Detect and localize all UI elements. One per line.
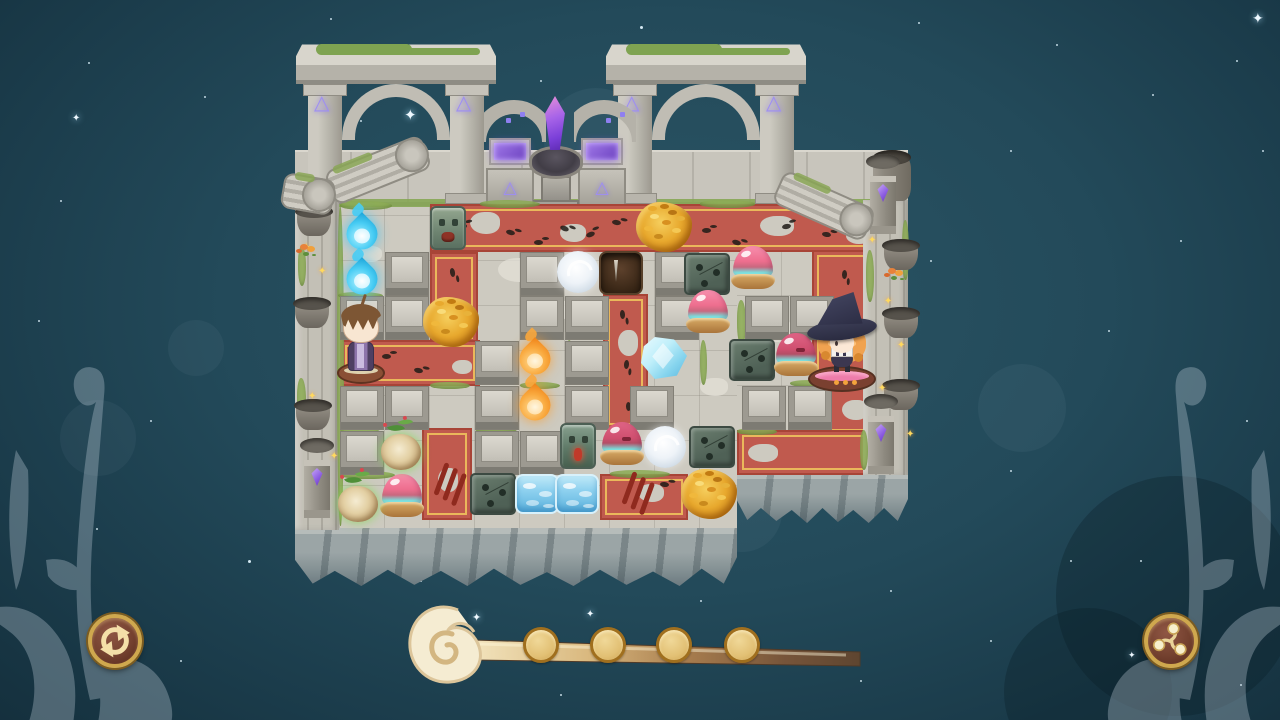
- stone-block: [385, 252, 429, 296]
- rune-marks: [606, 118, 611, 123]
- stone-pot: [884, 310, 918, 338]
- glowing-top: [489, 138, 531, 165]
- plant-pod: [378, 422, 424, 470]
- stone-block: [475, 386, 519, 430]
- star: [1010, 470, 1012, 472]
- smoke-orb: [557, 251, 599, 293]
- stone-block: [475, 341, 519, 385]
- orange-flame: [514, 331, 556, 381]
- stone-block: [788, 386, 832, 430]
- triangle-rune-icon: △: [314, 92, 329, 112]
- pink-slime: [378, 475, 426, 517]
- wear-patch: [748, 444, 778, 462]
- stone-block: [475, 431, 519, 475]
- gold-star-icon: ✦: [308, 392, 316, 402]
- star: [700, 600, 702, 602]
- tiki-head: [430, 206, 466, 250]
- broken-arc-fragment: [574, 94, 636, 142]
- pink-slime: [598, 423, 646, 465]
- boy-hero[interactable]: [338, 300, 384, 384]
- ice-crystal: [641, 337, 687, 379]
- claw-marks: [426, 459, 478, 501]
- gold-star-icon: ✦: [897, 341, 905, 351]
- star: [1180, 240, 1182, 242]
- leaf-pile: [681, 469, 737, 519]
- metal-plate: [729, 339, 775, 381]
- arch-curve: [342, 84, 450, 140]
- glowing-top: [581, 138, 623, 165]
- star: [640, 26, 643, 29]
- triangle-rune-icon: △: [766, 92, 781, 112]
- blue-flame: [341, 251, 383, 301]
- restart-arrows-icon: [92, 618, 138, 664]
- wear-patch: [618, 330, 638, 356]
- witch-hat-cone: [817, 292, 863, 325]
- arch-curve: [652, 84, 760, 140]
- stone-pot: [296, 402, 330, 430]
- wand-slot-2[interactable]: [590, 627, 626, 663]
- magic-wand-bar: [406, 604, 862, 692]
- star: [1236, 60, 1238, 62]
- rune-pedestal: △: [486, 138, 534, 206]
- gold-star-icon: ✦: [884, 297, 892, 307]
- moss-patch: [480, 200, 540, 208]
- moss-patch: [700, 200, 755, 208]
- stone-pot: [295, 300, 329, 328]
- stone-block: [565, 341, 609, 385]
- star: [1010, 150, 1012, 152]
- game-scene: ✦✦✦✦✦✦✦ △ △: [0, 0, 1280, 720]
- arch-moss: [316, 44, 412, 55]
- star: [248, 560, 251, 563]
- fallen-column: [279, 172, 336, 216]
- gem-pedestal: [862, 398, 900, 474]
- sparkle-icon: ✦: [1252, 12, 1264, 26]
- orange-flame: [514, 377, 556, 427]
- gold-star-icon: ✦: [906, 430, 914, 440]
- broken-arc-fragment: [484, 94, 546, 142]
- star: [204, 96, 206, 98]
- footprint-mark: [702, 228, 711, 233]
- star: [1056, 44, 1058, 46]
- wand-slot-3[interactable]: [656, 627, 692, 663]
- flower-cluster: [888, 268, 896, 274]
- witch-hero[interactable]: [804, 292, 880, 392]
- leaf-pile: [636, 202, 692, 252]
- restart-button[interactable]: [88, 614, 142, 668]
- pedestal-body: △: [578, 168, 626, 206]
- smoke-orb: [644, 426, 686, 468]
- star: [890, 590, 892, 592]
- star: [1108, 330, 1110, 332]
- gold-star-icon: ✦: [868, 236, 876, 246]
- star: [990, 640, 992, 642]
- blue-flame: [341, 206, 383, 256]
- wand-slot-1[interactable]: [523, 627, 559, 663]
- cliff-edge: [295, 528, 737, 586]
- hint-button[interactable]: [1144, 614, 1198, 668]
- water-tile: [555, 474, 599, 514]
- metal-plate: [689, 426, 735, 468]
- stone-arch-right: △ △: [606, 42, 806, 204]
- tiki-totem: [560, 423, 596, 469]
- triskelion-orbs-icon: [1148, 618, 1194, 664]
- stone-basin-altar: [529, 146, 583, 210]
- triangle-rune-icon: △: [456, 92, 471, 112]
- gold-star-icon: ✦: [318, 267, 326, 277]
- wear-patch: [452, 360, 472, 374]
- stone-pot: [884, 242, 918, 270]
- star: [1262, 150, 1264, 152]
- rune-marks: [506, 118, 511, 123]
- footprint-mark: [534, 240, 543, 245]
- pink-slime: [729, 247, 777, 289]
- star: [330, 18, 332, 20]
- pit-claws: [599, 251, 643, 295]
- flower-cluster: [300, 244, 308, 250]
- water-tile: [515, 474, 559, 514]
- gold-star-icon: ✦: [330, 452, 338, 462]
- rune-pedestal: △: [578, 138, 626, 206]
- magic-wand: [406, 604, 862, 692]
- stone-block: [742, 386, 786, 430]
- sparkle-icon: ✦: [72, 114, 80, 124]
- pink-slime: [684, 291, 732, 333]
- star: [1152, 94, 1154, 96]
- stone-block: [520, 431, 564, 475]
- moss-patch: [430, 382, 470, 389]
- star: [88, 62, 90, 64]
- star: [540, 80, 542, 82]
- arch-moss: [626, 44, 722, 55]
- wear-patch: [470, 212, 500, 234]
- metal-plate: [684, 253, 730, 295]
- star: [38, 320, 40, 322]
- moss-patch: [700, 340, 707, 385]
- claw-marks: [614, 468, 666, 510]
- wand-slot-4[interactable]: [724, 627, 760, 663]
- plant-pod: [335, 474, 381, 522]
- stone-block: [565, 296, 609, 340]
- leaf-pile: [423, 297, 479, 347]
- boy-robe: [348, 341, 374, 371]
- star: [918, 22, 920, 24]
- star: [60, 200, 62, 202]
- star: [930, 260, 932, 262]
